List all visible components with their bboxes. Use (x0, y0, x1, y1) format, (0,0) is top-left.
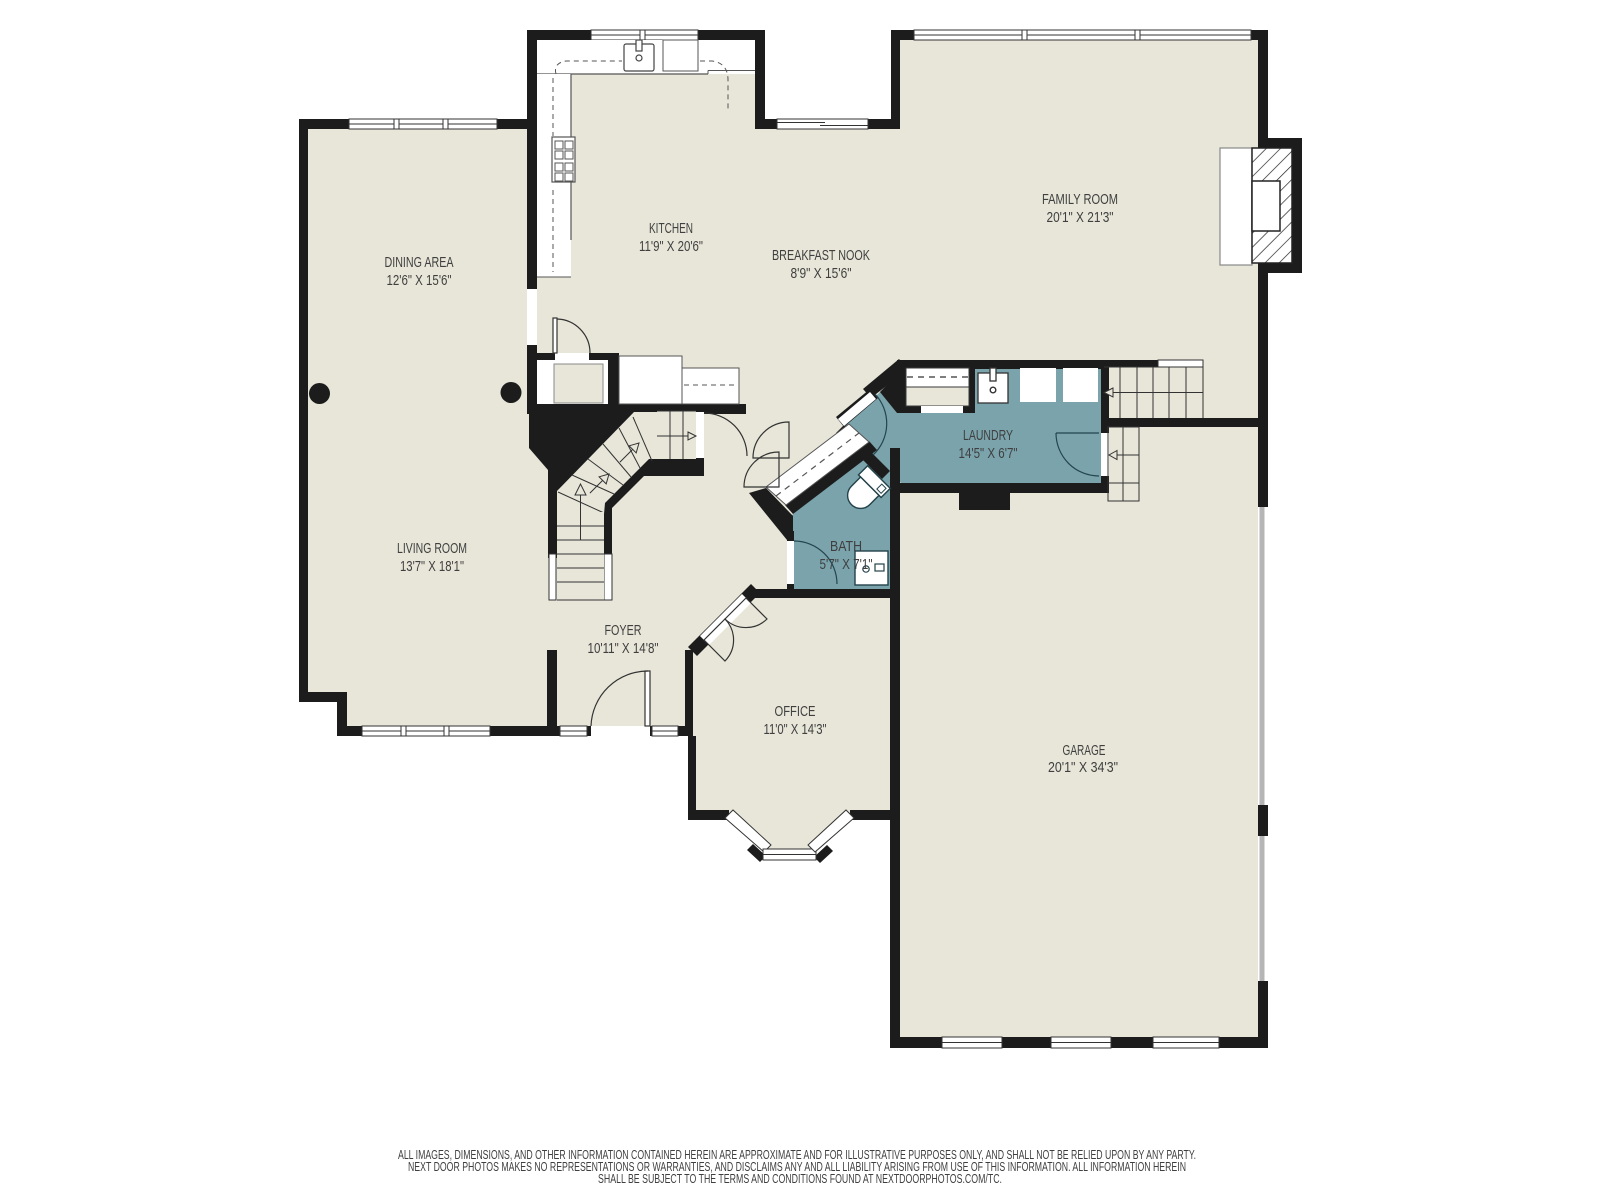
svg-text:8'9" X 15'6": 8'9" X 15'6" (791, 266, 852, 282)
svg-text:BATH: BATH (830, 539, 862, 555)
svg-text:20'1" X 34'3": 20'1" X 34'3" (1048, 760, 1118, 776)
svg-text:11'9" X 20'6": 11'9" X 20'6" (639, 239, 703, 255)
svg-text:BREAKFAST NOOK: BREAKFAST NOOK (772, 248, 870, 264)
svg-text:20'1" X 21'3": 20'1" X 21'3" (1047, 210, 1114, 226)
svg-text:12'6" X 15'6": 12'6" X 15'6" (387, 273, 452, 289)
svg-text:OFFICE: OFFICE (775, 704, 816, 720)
svg-text:LAUNDRY: LAUNDRY (963, 428, 1013, 444)
svg-text:10'11" X 14'8": 10'11" X 14'8" (588, 641, 659, 657)
svg-text:11'0" X 14'3": 11'0" X 14'3" (764, 722, 827, 738)
svg-text:FAMILY ROOM: FAMILY ROOM (1042, 192, 1118, 208)
svg-text:SHALL BE SUBJECT TO THE TERMS: SHALL BE SUBJECT TO THE TERMS AND CONDIT… (598, 1171, 1002, 1186)
svg-text:GARAGE: GARAGE (1063, 743, 1106, 759)
svg-text:14'5" X 6'7": 14'5" X 6'7" (959, 446, 1018, 462)
svg-text:5'7" X 7'1": 5'7" X 7'1" (820, 557, 873, 573)
svg-text:13'7" X 18'1": 13'7" X 18'1" (400, 559, 464, 575)
svg-text:LIVING ROOM: LIVING ROOM (397, 541, 467, 557)
svg-text:KITCHEN: KITCHEN (649, 221, 693, 237)
svg-text:FOYER: FOYER (605, 623, 642, 639)
svg-text:DINING AREA: DINING AREA (385, 255, 454, 271)
